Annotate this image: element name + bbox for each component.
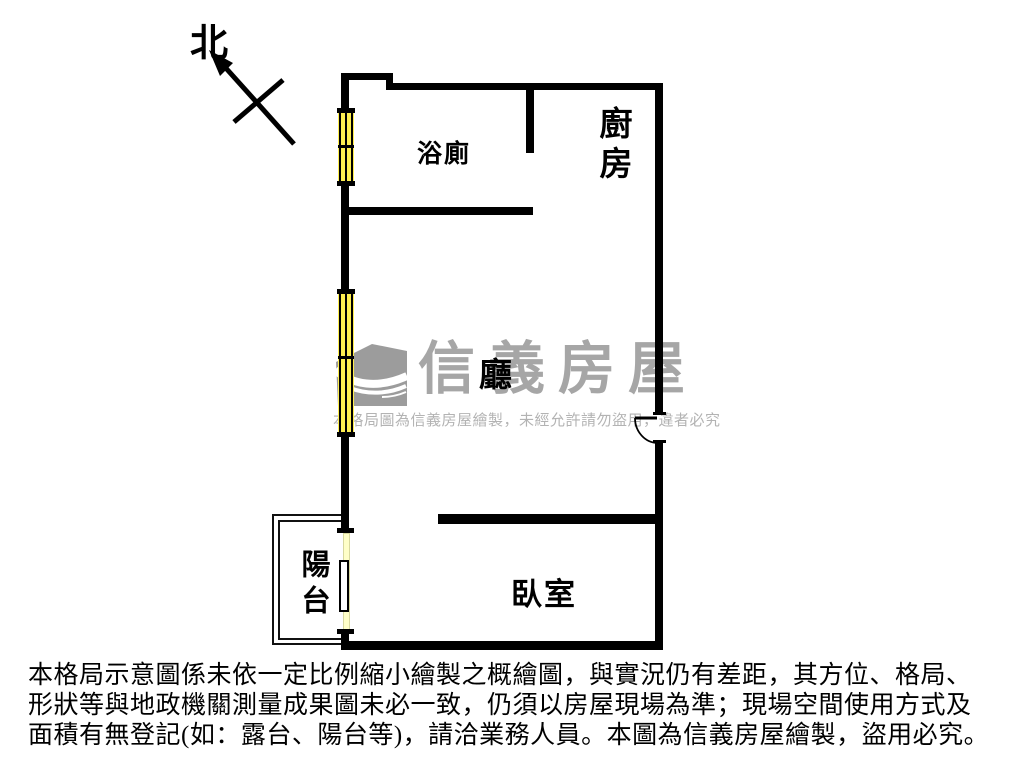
window-upper [338,108,354,186]
room-label-bedroom: 臥室 [511,569,577,614]
disclaimer-line: 面積有無登記(如：露台、陽台等)，請洽業務人員。本圖為信義房屋繪製，盜用必究。 [28,721,1013,751]
floor-plan-page: 信義房屋 本格局圖為信義房屋繪製，未經允許請勿盜用，違者必究 [0,0,1024,768]
wall-bedroom-partition [438,514,663,524]
wall-bathroom-divider [526,83,534,153]
north-label: 北 [190,12,228,67]
disclaimer-line: 形狀等與地政機關測量成果圖未必一致，仍須以房屋現場為準；現場空間使用方式及 [28,691,1013,721]
wall-right-upper [655,83,663,415]
disclaimer-text: 本格局示意圖係未依一定比例縮小繪製之概繪圖，與實況仍有差距，其方位、格局、 形狀… [28,661,1013,751]
wall-bottom [341,641,663,650]
room-label-balcony: 陽台 [292,549,334,621]
wall-bathroom-bottom [341,207,533,215]
room-label-living: 廳 [479,348,512,396]
window-lower [338,289,354,437]
wall-top-right [386,83,663,90]
door-jamb-top [653,412,666,415]
disclaimer-line: 本格局示意圖係未依一定比例縮小繪製之概繪圖，與實況仍有差距，其方位、格局、 [28,661,1013,691]
wall-right-lower [655,443,663,650]
sliding-door-cap-bottom [337,629,354,634]
room-label-bathroom: 浴廁 [417,134,471,170]
room-label-kitchen: 廚房 [588,106,636,186]
sliding-door-panel [339,560,349,612]
door-jamb-bottom [653,440,666,443]
